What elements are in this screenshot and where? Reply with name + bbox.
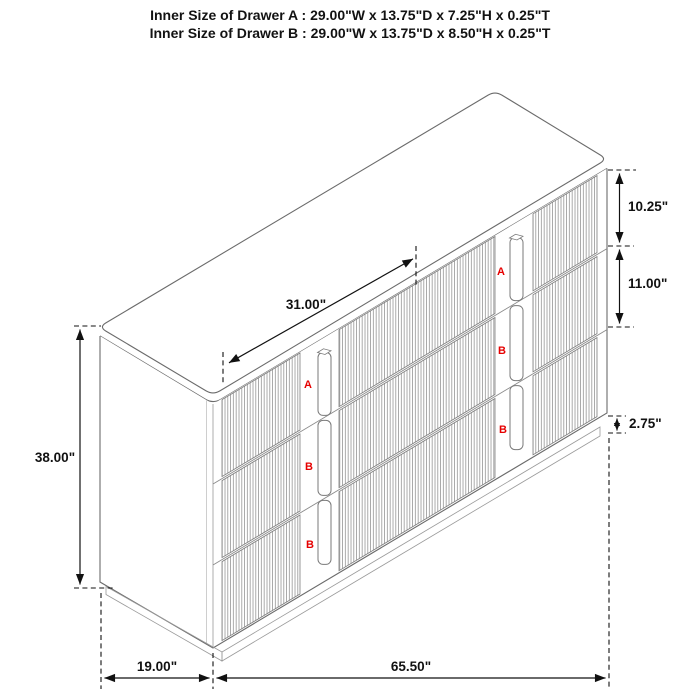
fluted-section-middle [339, 237, 495, 571]
dimension-label-10-25: 10.25" [628, 199, 668, 214]
dimension-label-2-75: 2.75" [629, 416, 662, 431]
right-drawer-handle [510, 234, 524, 449]
dimension-label-19-00: 19.00" [137, 659, 177, 674]
dimension-diagram-page: Inner Size of Drawer A : 29.00"W x 13.75… [0, 0, 700, 700]
fluted-section-left [222, 353, 300, 641]
right-handle-segment-b2 [510, 386, 523, 450]
dresser-dimension-drawing: A B B A B B 31.00" 10.25" 11.00" [0, 0, 700, 700]
dimension-base-height: 2.75" [608, 416, 662, 433]
dresser-drawing: A B B A B B [100, 93, 607, 661]
right-handle-segment-b1 [510, 306, 523, 381]
right-stack-label-b2: B [499, 424, 507, 436]
left-stack-label-b2: B [306, 539, 314, 551]
fluted-section-right [533, 176, 597, 455]
dimension-drawer-heights: 10.25" 11.00" [608, 170, 668, 327]
left-drawer-handle [318, 349, 332, 565]
dimension-label-31: 31.00" [286, 297, 326, 312]
left-stack-label-b1: B [305, 461, 313, 473]
right-handle-segment-a [510, 238, 523, 301]
dimension-label-38-00: 38.00" [35, 450, 75, 465]
dimension-label-11-00: 11.00" [628, 276, 667, 291]
right-stack-label-b1: B [498, 345, 506, 357]
left-handle-segment-b2 [318, 500, 331, 564]
left-stack-label-a: A [304, 379, 312, 391]
right-stack-label-a: A [497, 266, 505, 278]
left-handle-segment-a [318, 352, 331, 415]
dimension-label-65-50: 65.50" [391, 659, 431, 674]
left-handle-segment-b1 [318, 420, 331, 495]
